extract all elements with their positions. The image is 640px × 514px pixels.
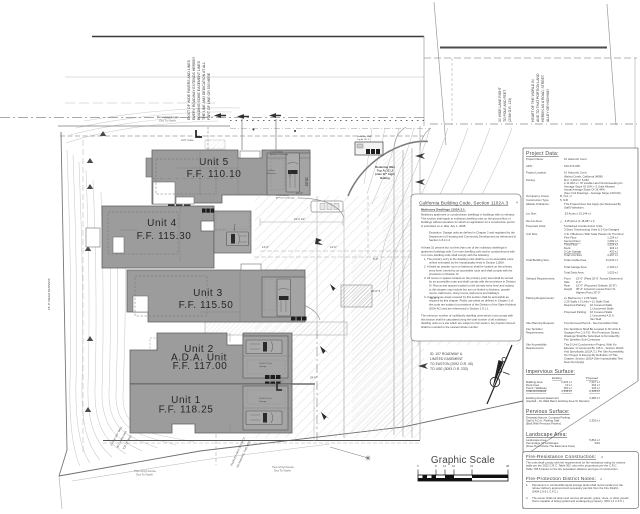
svg-text:THE LINE AND DEDICATION AT ALL: THE LINE AND DEDICATION AT ALL — [202, 62, 206, 120]
svg-text:TO POLE AND FEET: TO POLE AND FEET — [503, 90, 507, 122]
svg-text:Parking Requirements:: Parking Requirements: — [526, 296, 555, 300]
svg-text:16'-0": 16'-0" — [296, 191, 303, 195]
svg-text:Unit 3: Unit 3 — [193, 288, 223, 299]
svg-text:Retaining Wall: Retaining Wall — [357, 135, 372, 138]
svg-text:Total Building Size:: Total Building Size: — [526, 258, 550, 262]
svg-text:Setback Requirements:: Setback Requirements: — [526, 277, 555, 281]
svg-text:Tree Removal Permit - See Demo: Tree Removal Permit - See Demolition Pla… — [564, 321, 619, 325]
svg-text:(Built With Pervious Pavers): (Built With Pervious Pavers) — [526, 422, 561, 426]
svg-text:Garage: Garage — [259, 400, 267, 403]
svg-text:At Front Of Garage: At Front Of Garage — [276, 197, 295, 200]
svg-text:(3404.2.9.6.1 C.F.C.): (3404.2.9.6.1 C.F.C.) — [532, 489, 558, 493]
svg-text:15'-0" REAR SETBACK: 15'-0" REAR SETBACK — [47, 278, 51, 310]
svg-text:Unit Size:: Unit Size: — [526, 232, 538, 236]
svg-text:Total Unit Size: Total Unit Size — [564, 253, 582, 257]
svg-text:Multistory Dwellings 1102A.3.1: Multistory Dwellings 1102A.3.1: — [421, 208, 466, 212]
svg-text:Out To North: Out To North — [274, 469, 291, 473]
svg-text:Fire-Resistance Construction:: Fire-Resistance Construction: — [526, 454, 596, 460]
svg-text:Garage: Garage — [233, 224, 236, 232]
svg-text:Garage: Garage — [259, 365, 267, 368]
svg-text:29'-6": 29'-6" — [310, 376, 317, 380]
svg-text:2x6' Gate: 2x6' Gate — [270, 379, 283, 383]
svg-text:Unit 5: Unit 5 — [199, 157, 229, 168]
svg-text:100-270-005: 100-270-005 — [564, 164, 580, 168]
svg-text:2,350 s.f: 2,350 s.f — [589, 419, 600, 423]
svg-text:.53 Acres ± 23,144 s.f.: .53 Acres ± 23,144 s.f. — [564, 212, 592, 216]
svg-text:F.F. 115.50: F.F. 115.50 — [179, 300, 234, 311]
svg-text:15'-0" (Plant 20'-0" Across E: 15'-0" (Plant 20'-0" Across Easement) — [576, 277, 623, 281]
svg-text:Site Planning Request:: Site Planning Request: — [526, 321, 555, 325]
svg-text:24'-0 1/2": 24'-0 1/2" — [294, 217, 305, 221]
svg-text:14'-0": 14'-0" — [262, 245, 269, 249]
svg-text:2.: 2. — [526, 496, 529, 500]
svg-text:(2086 O.R. 123): (2086 O.R. 123) — [508, 98, 512, 122]
svg-text:Pervious Surface:: Pervious Surface: — [526, 409, 570, 415]
svg-text:3,297 s.f: 3,297 s.f — [607, 253, 618, 257]
svg-text:19.23: 19.23 — [305, 177, 309, 186]
svg-text:PART OF LINE OR 530 HERE: PART OF LINE OR 530 HERE — [207, 72, 211, 120]
svg-text:EXIST OF WIDE PAVERS AND LINES: EXIST OF WIDE PAVERS AND LINES — [187, 59, 191, 120]
svg-text:Total Livable Area: Total Livable Area — [564, 258, 587, 262]
svg-text:10 Holcomb Court: 10 Holcomb Court — [564, 157, 587, 161]
svg-text:Total All Drained: Total All Drained — [526, 389, 547, 393]
svg-text:APN:: APN: — [526, 164, 533, 168]
svg-text:(DSA-AC) and are referenced in: (DSA-AC) and are referenced in Section 1… — [429, 306, 489, 310]
svg-text:TO EASTON (2092 O.R. 45): TO EASTON (2092 O.R. 45) — [430, 362, 473, 366]
svg-text:24'x20' 2-Car: 24'x20' 2-Car — [259, 362, 272, 365]
svg-text:Lot Size:: Lot Size: — [526, 212, 537, 216]
svg-text:Required Parking: Required Parking — [564, 303, 586, 307]
svg-text:Requirements:: Requirements: — [526, 331, 544, 335]
svg-text:BUILDING SOME EASEMENT LINES: BUILDING SOME EASEMENT LINES — [197, 60, 201, 120]
svg-text:.415 Acres (± 18,087 s.f): .415 Acres (± 18,087 s.f) — [564, 219, 595, 223]
svg-text:(See Civil Drawings - Average: (See Civil Drawings - Average Slope C4/0… — [564, 191, 621, 195]
svg-text:Impervious Surface:: Impervious Surface: — [526, 369, 575, 375]
svg-text:Project Name:: Project Name: — [526, 157, 544, 161]
svg-text:(Does Not Include The Easement: (Does Not Include The Easement Area) — [526, 444, 575, 448]
svg-text:Proposed Units:: Proposed Units: — [526, 224, 546, 228]
svg-text:1.: 1. — [526, 483, 529, 487]
svg-text:Highest Point 35'-0": Highest Point 35'-0" — [576, 291, 601, 295]
svg-text:Top At 107.9: Top At 107.9 — [357, 138, 370, 141]
svg-text:Fire Sprinkler Sub-Contractor: Fire Sprinkler Sub-Contractor — [564, 338, 600, 342]
svg-text:Net Lot Area:: Net Lot Area: — [526, 219, 543, 223]
svg-text:ID: 107 ROADWAY &: ID: 107 ROADWAY & — [430, 352, 463, 356]
svg-text:24: 24 — [470, 464, 474, 468]
svg-text:F.F. 118.25: F.F. 118.25 — [159, 405, 214, 416]
svg-text:24'x20': 24'x20' — [288, 170, 290, 177]
svg-text:Fire-Protection District Notes: Fire-Protection District Notes: — [526, 476, 596, 482]
svg-text:40'-0" 3: 40'-0" 3 — [430, 296, 440, 300]
svg-text:Out To North: Out To North — [136, 473, 153, 477]
svg-text:F.F. 115.30: F.F. 115.30 — [137, 231, 192, 242]
svg-text:34%: 34% — [594, 441, 600, 445]
svg-text:Total Deck Area: Total Deck Area — [564, 271, 584, 275]
svg-text:Requirements:: Requirements: — [526, 346, 544, 350]
svg-text:(Asphalt - No Walk Band, Exist: (Asphalt - No Walk Band, Existing Area T… — [526, 399, 589, 403]
svg-text:TO USE (3093 O.R. 233): TO USE (3093 O.R. 233) — [430, 367, 468, 371]
svg-text:Total Garage Area: Total Garage Area — [564, 265, 587, 269]
svg-text:AND TO THAT PORTION LAND: AND TO THAT PORTION LAND — [536, 73, 540, 122]
svg-text:40'-0" 3: 40'-0" 3 — [371, 289, 381, 293]
svg-text:Out To North: Out To North — [159, 119, 176, 123]
svg-text:24'x20' 2-Car: 24'x20' 2-Car — [259, 397, 272, 400]
svg-text:Belspace: Belspace — [267, 173, 277, 175]
svg-text:ALLEY OR HIGHWAY: ALLEY OR HIGHWAY — [546, 88, 550, 122]
svg-text:Proposed Parking: Proposed Parking — [564, 310, 587, 314]
svg-text:shall be rounded to the neares: shall be rounded to the nearest whole nu… — [421, 325, 479, 329]
svg-text:HEREIN AS A ROAD, STREET: HEREIN AS A ROAD, STREET — [541, 75, 545, 122]
svg-text:HEART OF THE WORLD IN: HEART OF THE WORLD IN — [531, 79, 535, 122]
svg-text:16: 16 — [452, 464, 456, 468]
svg-text:Zoning:: Zoning: — [526, 178, 536, 182]
svg-text:LIMITED EASEMENT: LIMITED EASEMENT — [430, 357, 463, 361]
svg-text:5'-0": 5'-0" — [373, 257, 378, 261]
svg-text:F.F. 110.10: F.F. 110.10 — [187, 169, 242, 180]
svg-text:Unit 4: Unit 4 — [147, 218, 177, 229]
svg-text:2x6' Gate: 2x6' Gate — [181, 138, 194, 142]
svg-text:Outdoor: Outdoor — [267, 169, 275, 172]
svg-text:Section 1.8.2.1.2.: Section 1.8.2.1.2. — [429, 238, 451, 242]
svg-text:is submitted on or after July: is submitted on or after July 1, 2005. — [421, 224, 466, 228]
svg-text:At Back Of Garage: At Back Of Garage — [270, 153, 289, 156]
svg-text:California Building Code, Sect: California Building Code, Section 1102A.… — [419, 201, 509, 206]
svg-text:Graphic Scale: Graphic Scale — [431, 455, 495, 466]
svg-text:3-Story Townhousing Units & 2-: 3-Story Townhousing Units & 2-Car Garage… — [564, 228, 620, 232]
svg-text:3,546 s.f: 3,546 s.f — [561, 389, 572, 393]
svg-text:Table 705.5 based on the fire: Table 705.5 based on the fire separation… — [526, 467, 619, 471]
svg-text:Railing: Railing — [380, 176, 390, 180]
svg-text:14'-0": 14'-0" — [330, 245, 337, 249]
svg-text:Height: Height — [564, 287, 572, 291]
svg-text:4,380 s.f: 4,380 s.f — [589, 396, 600, 400]
svg-text:that is capable of being ignit: that is capable of being ignited and end… — [532, 499, 624, 503]
svg-text:12: 12 — [443, 464, 447, 468]
svg-text:Project Location:: Project Location: — [526, 171, 547, 175]
svg-text:11,040 s.f: 11,040 s.f — [606, 258, 618, 262]
svg-text:Does Not Apply): Does Not Apply) — [564, 360, 584, 364]
svg-text:30 WIDE LANE RIGHT: 30 WIDE LANE RIGHT — [498, 87, 502, 122]
svg-text:F.F. 117.00: F.F. 117.00 — [173, 361, 228, 372]
svg-text:8,346 s.f: 8,346 s.f — [589, 389, 600, 393]
svg-text:48: 48 — [506, 464, 510, 468]
svg-text:2,100 s.f: 2,100 s.f — [607, 265, 618, 269]
svg-text:1,020 s.f: 1,020 s.f — [607, 271, 618, 275]
svg-text:Staff) Variations: Staff) Variations — [564, 206, 584, 210]
svg-text:EVERY ROADWAY EXTENDS HEREBY: EVERY ROADWAY EXTENDS HEREBY — [192, 56, 196, 120]
svg-text:Hillside Ordinance:: Hillside Ordinance: — [526, 202, 550, 206]
